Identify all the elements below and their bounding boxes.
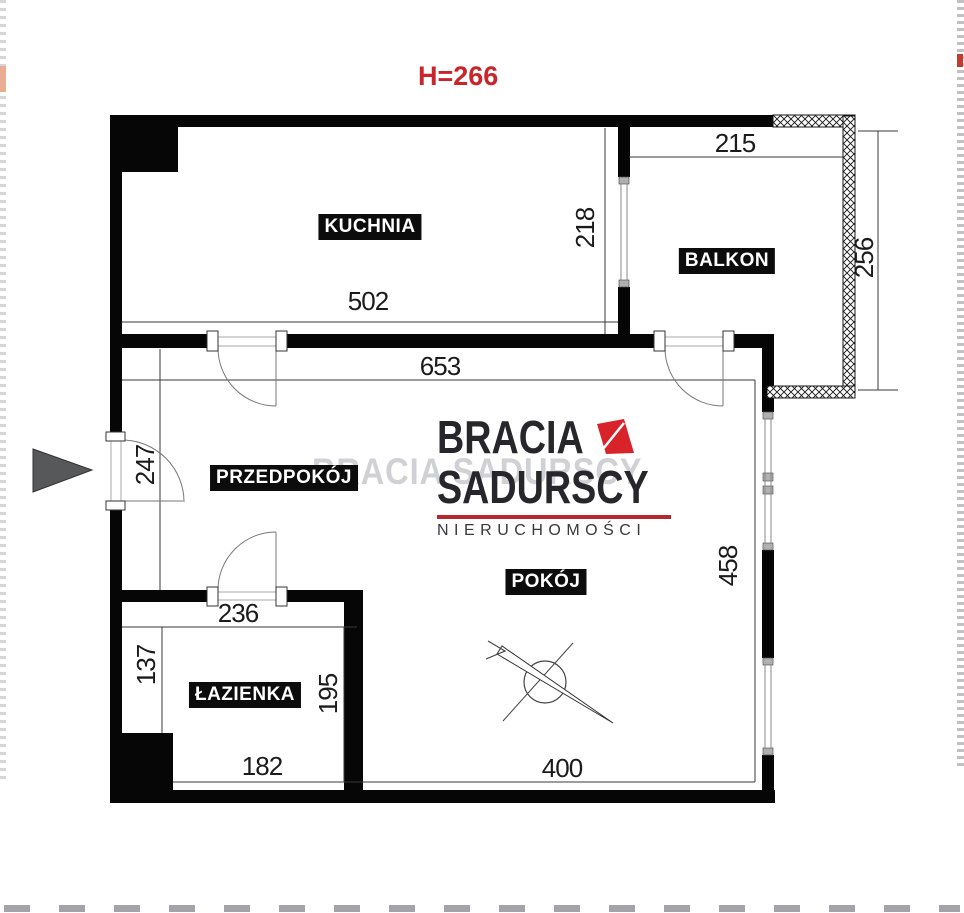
dim-label-balcony-width: 215 <box>715 130 755 156</box>
room-label-bathroom: ŁAZIENKA <box>189 682 301 708</box>
logo-tagline: NIERUCHOMOŚCI <box>437 522 695 540</box>
ceiling-height-note: H=266 <box>418 61 498 92</box>
dim-label-room-width: 400 <box>542 755 582 781</box>
room-label-hallway: PRZEDPOKÓJ <box>210 465 358 491</box>
dim-label-bathroom-right-height: 195 <box>315 674 341 714</box>
dim-label-room-height: 458 <box>715 546 741 586</box>
edge-artifact-bottom-dashes <box>4 905 960 912</box>
dim-label-bathroom-top-width: 236 <box>218 600 258 626</box>
room-label-balcony: BALKON <box>679 248 775 274</box>
room-label-room: POKÓJ <box>505 569 586 595</box>
edge-artifact-right <box>957 0 964 770</box>
dim-label-bathroom-bottom-width: 182 <box>242 753 282 779</box>
entrance-arrow <box>33 449 92 492</box>
dim-label-hall-height: 247 <box>132 445 158 485</box>
floorplan-canvas: BRACIA SADURSCY <box>0 0 964 913</box>
logo-flag-icon <box>593 416 639 458</box>
edge-artifact-right-red <box>957 54 963 67</box>
dim-label-bathroom-left-height: 137 <box>133 645 159 685</box>
room-label-kitchen: KUCHNIA <box>318 214 421 240</box>
dim-label-hall-width: 653 <box>420 353 460 379</box>
logo-rule <box>437 515 671 519</box>
edge-artifact-left <box>0 0 6 780</box>
edge-artifact-left-salmon <box>0 66 6 92</box>
dim-label-kitchen-width: 502 <box>348 288 388 314</box>
dim-label-kitchen-height: 218 <box>572 208 598 248</box>
north-arrow-icon <box>486 641 613 723</box>
logo-brand-line2: SADURSCY <box>437 464 649 510</box>
agency-logo: BRACIA SADURSCY NIERUCHOMOŚCI <box>437 414 695 540</box>
dim-label-balcony-height: 256 <box>851 238 877 278</box>
